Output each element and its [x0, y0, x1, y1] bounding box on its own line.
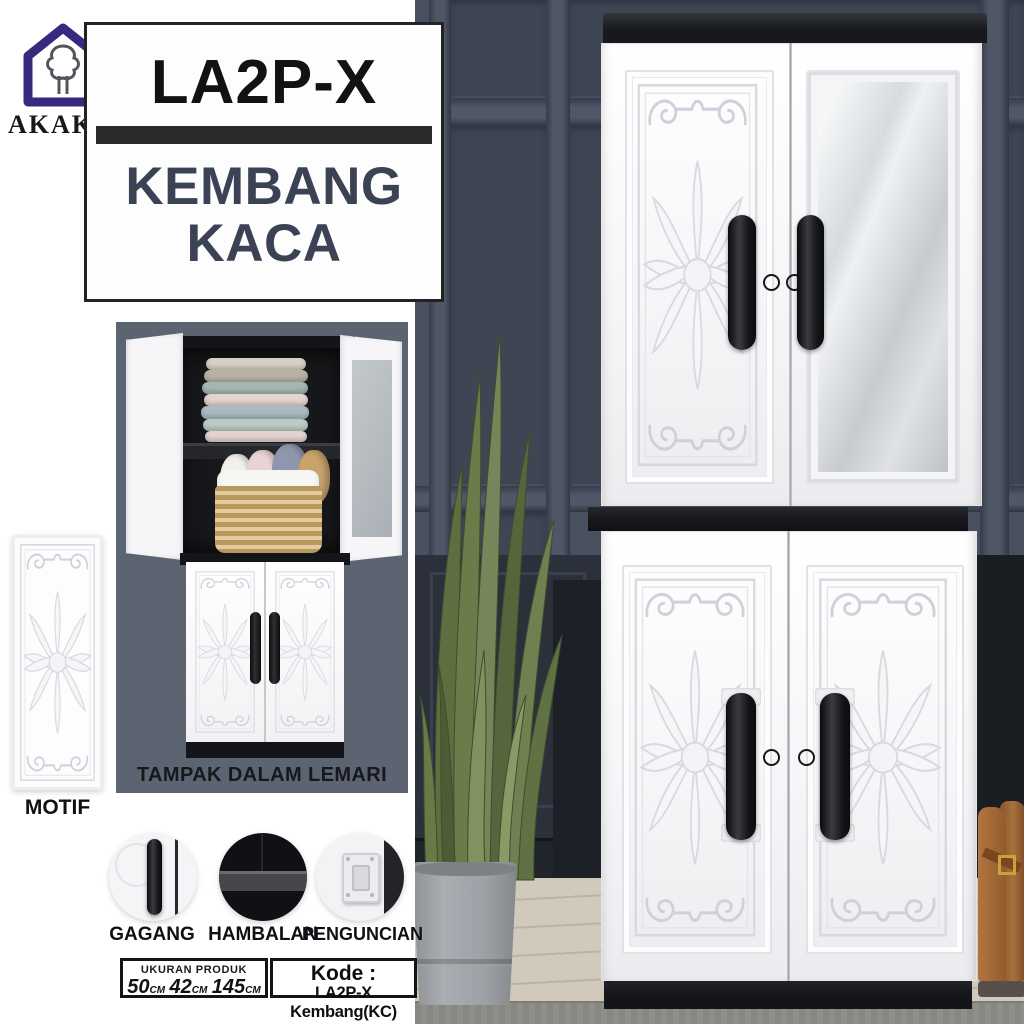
size-depth: 42: [170, 976, 192, 998]
feature-gagang-photo: [109, 833, 197, 921]
model-name: LA2P-X: [151, 52, 377, 114]
title-divider-bar: [96, 126, 432, 144]
towel: [206, 358, 306, 370]
plant-pot: [415, 862, 517, 1005]
size-width: 50: [127, 976, 149, 998]
upper-left-handle: [728, 215, 756, 350]
shelf-detail: [219, 871, 307, 891]
wall-panel: [1009, 0, 1024, 98]
inset-closed-doors: [186, 562, 344, 742]
pot-seam: [416, 959, 513, 966]
screw: [346, 893, 350, 897]
latch-hole: [352, 865, 370, 891]
interior-edge: [384, 833, 404, 921]
feature-hambalan-photo: [219, 833, 307, 921]
feature-penguncian-photo: [316, 833, 404, 921]
screw: [346, 857, 350, 861]
open-right-door: [340, 335, 402, 562]
upper-right-handle: [797, 215, 824, 350]
screw: [370, 893, 374, 897]
code-value: LA2P-X Kembang(KC): [273, 984, 414, 1022]
product-size-box: UKURAN PRODUK 50CM 42CM 145CM: [120, 958, 268, 998]
motif-ornament: [16, 539, 99, 786]
cabinet-base: [604, 981, 972, 1009]
door-motif: [192, 568, 258, 736]
panel-seam: [261, 833, 263, 871]
open-left-door: [126, 333, 183, 560]
wicker-basket: [215, 486, 322, 553]
towel: [203, 419, 308, 431]
cabinet-top-cap: [603, 13, 987, 43]
code-heading: Kode :: [273, 963, 414, 984]
motif-sample-panel: [12, 535, 103, 790]
boot-buckle: [998, 855, 1016, 875]
boot-sole: [978, 981, 1024, 997]
wall-panel: [451, 0, 546, 98]
wall-panel: [1009, 126, 1024, 486]
series-name-line2: KACA: [186, 215, 341, 272]
feature-gagang-label: GAGANG: [102, 924, 202, 946]
inset-base: [186, 742, 344, 758]
towel: [204, 394, 308, 406]
product-code-box: Kode : LA2P-X Kembang(KC): [270, 958, 417, 998]
inset-caption: TAMPAK DALAM LEMARI: [116, 764, 408, 787]
inside-view-inset: TAMPAK DALAM LEMARI: [116, 322, 408, 793]
lower-right-handle: [820, 693, 850, 840]
pot-rim: [415, 862, 517, 876]
wall-batten: [980, 0, 1009, 562]
size-unit: CM: [245, 985, 261, 996]
middle-band: [588, 507, 968, 531]
boot: [978, 807, 1006, 983]
keyhole: [798, 749, 815, 766]
motif-label: MOTIF: [12, 796, 103, 820]
product-promo-image: ® AKAKO LA2P-X KEMBANG KACA: [0, 0, 1024, 1024]
keyhole: [763, 274, 780, 291]
screw: [370, 857, 374, 861]
feature-penguncian-label: PENGUNCIAN: [302, 924, 422, 945]
size-unit: CM: [150, 985, 166, 996]
size-values: 50CM 42CM 145CM: [123, 976, 265, 999]
title-box: LA2P-X KEMBANG KACA: [84, 22, 444, 302]
door-gap: [264, 562, 266, 742]
towel: [201, 406, 309, 419]
size-height: 145: [212, 976, 245, 998]
handle-detail: [147, 839, 162, 915]
keyhole: [763, 749, 780, 766]
size-heading: UKURAN PRODUK: [123, 964, 265, 976]
door-gap: [787, 531, 790, 981]
towel: [205, 431, 307, 442]
towel: [204, 370, 308, 382]
room-photo: [415, 0, 1024, 1024]
towel: [202, 382, 308, 394]
door-motif: [272, 568, 338, 736]
door-mirror: [352, 360, 392, 537]
lock-latch: [342, 853, 380, 903]
snake-plant: [415, 315, 580, 890]
boots: [978, 795, 1024, 1008]
lower-left-handle: [726, 693, 756, 840]
mirror: [818, 82, 948, 472]
size-unit: CM: [192, 985, 208, 996]
mini-handle: [250, 612, 261, 684]
door-edge: [175, 833, 178, 921]
series-name-line1: KEMBANG: [125, 158, 402, 215]
mini-handle: [269, 612, 280, 684]
